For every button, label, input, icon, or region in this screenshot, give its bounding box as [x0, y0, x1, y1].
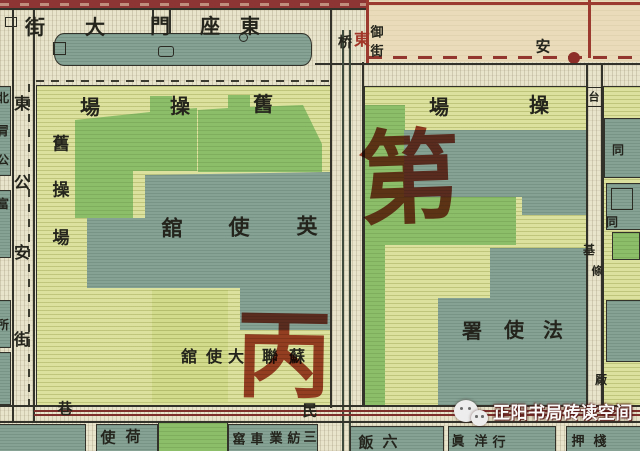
left-edge-char: 富	[0, 198, 9, 210]
hutong-char: 同	[606, 216, 618, 228]
top-street-char: 座	[200, 16, 220, 36]
top-street-char: 街	[25, 17, 45, 37]
left-street-curb-west	[12, 8, 14, 421]
british-legation-char: 使	[229, 218, 250, 239]
canal-line-west	[342, 30, 344, 451]
left-street-char: 東	[14, 96, 30, 112]
left-street-char: 公	[14, 175, 30, 191]
canal-bridge-label: 桥	[338, 36, 352, 50]
right-edge-small-square	[611, 188, 633, 210]
textile-block-char: 紡	[287, 433, 300, 446]
taijichang-curb-west	[586, 63, 588, 408]
dutch-legation-char: 使	[100, 431, 115, 446]
watermark-text: 正阳书局砖读空间	[493, 406, 633, 423]
textile-block-char: 車	[250, 434, 263, 447]
old-ground-label-char: 場	[80, 97, 100, 117]
changan-street-char: 安	[535, 40, 550, 55]
french-legation-char: 法	[543, 320, 563, 340]
french-legation-char: 使	[504, 320, 524, 340]
french-legation-char: 署	[462, 321, 482, 341]
left-street-char: 街	[14, 332, 30, 348]
cream-block-changan	[366, 0, 640, 62]
top-road-edge-line	[0, 8, 370, 10]
old-ground-label-char: 舊	[253, 94, 273, 114]
old-ground-label-char: 操	[170, 96, 190, 116]
bottom-street-char: 巷	[57, 402, 72, 417]
top-street-char: 門	[150, 16, 170, 36]
bottom-green-lot	[158, 422, 228, 451]
top-street-char: 大	[85, 17, 105, 37]
strip-fixture-square-left	[53, 42, 66, 55]
taijichang-char: 基	[583, 244, 595, 256]
left-edge-char: 所	[0, 319, 9, 331]
hotel-block-char: 飯	[358, 436, 373, 451]
street-south-curb-right	[315, 63, 640, 65]
right-ground-char: 場	[429, 97, 449, 117]
building-right-north-step	[522, 197, 587, 215]
left-edge-char: 冐	[0, 125, 9, 137]
old-ground-side-char: 操	[53, 183, 70, 200]
soviet-embassy-char: 舘	[181, 349, 197, 365]
left-edge-char: 公	[0, 154, 9, 166]
right-edge-green-lot	[612, 232, 640, 260]
red-line-top	[368, 2, 640, 5]
british-legation-char: 舘	[162, 219, 183, 240]
canal-red-char: 東	[354, 32, 370, 48]
pawn-block-char: 棧	[593, 436, 606, 449]
textile-block-char: 三	[303, 432, 316, 445]
canal-line-east	[349, 30, 351, 451]
taijichang-char: 台	[589, 92, 600, 103]
strip-fixture-square-mid	[158, 46, 174, 57]
textile-block-char: 業	[269, 433, 282, 446]
right-edge-building-3	[606, 300, 640, 362]
junction-box-topleft	[5, 17, 17, 27]
left-street-char: 安	[14, 245, 30, 261]
hutong-char: 同	[612, 144, 624, 156]
red-dashed-boundary	[368, 56, 640, 59]
firm-block-char: 眞	[451, 436, 464, 449]
left-street-curb-east	[33, 8, 35, 421]
old-ground-side-char: 場	[53, 231, 70, 248]
old-ground-side-char: 舊	[53, 137, 70, 154]
left-edge-char: 北	[0, 92, 9, 104]
bottom-building-1	[0, 424, 86, 451]
british-legation-char: 英	[297, 217, 318, 238]
hotel-block-char: 六	[382, 435, 397, 450]
watermark: 正阳书局砖读空间	[452, 396, 638, 432]
park-strip-right-canal	[365, 245, 385, 405]
textile-block-char: 窰	[232, 434, 245, 447]
canal-vertical-char: 御	[370, 27, 383, 40]
right-ground-char: 操	[529, 95, 549, 115]
map-canvas: 街 大 門 座 東 東 公 安 街 北 冐 公 富 所 場 操 舊 舊 操 場 …	[0, 0, 640, 451]
firm-block-char: 洋	[474, 436, 487, 449]
dutch-legation-char: 荷	[125, 430, 140, 445]
courtyard-soviet-embassy	[152, 290, 228, 402]
left-edge-building-4	[0, 352, 11, 405]
firm-block-char: 行	[492, 437, 505, 450]
top-street-char: 東	[240, 16, 260, 36]
pawn-block-char: 押	[571, 436, 584, 449]
wechat-icon	[452, 398, 490, 430]
red-stamp-di: 第	[356, 127, 461, 232]
canal-vertical-char: 街	[370, 46, 383, 59]
red-stamp-bing: 丙	[235, 307, 333, 405]
taijichang-char: 厰	[595, 374, 607, 386]
red-line-vertical-east	[588, 0, 591, 58]
taijichang-char: 條	[592, 266, 603, 277]
wechat-bubble-small	[471, 410, 488, 426]
soviet-embassy-char: 使	[206, 349, 222, 365]
boundary-dashed-top	[36, 80, 332, 82]
